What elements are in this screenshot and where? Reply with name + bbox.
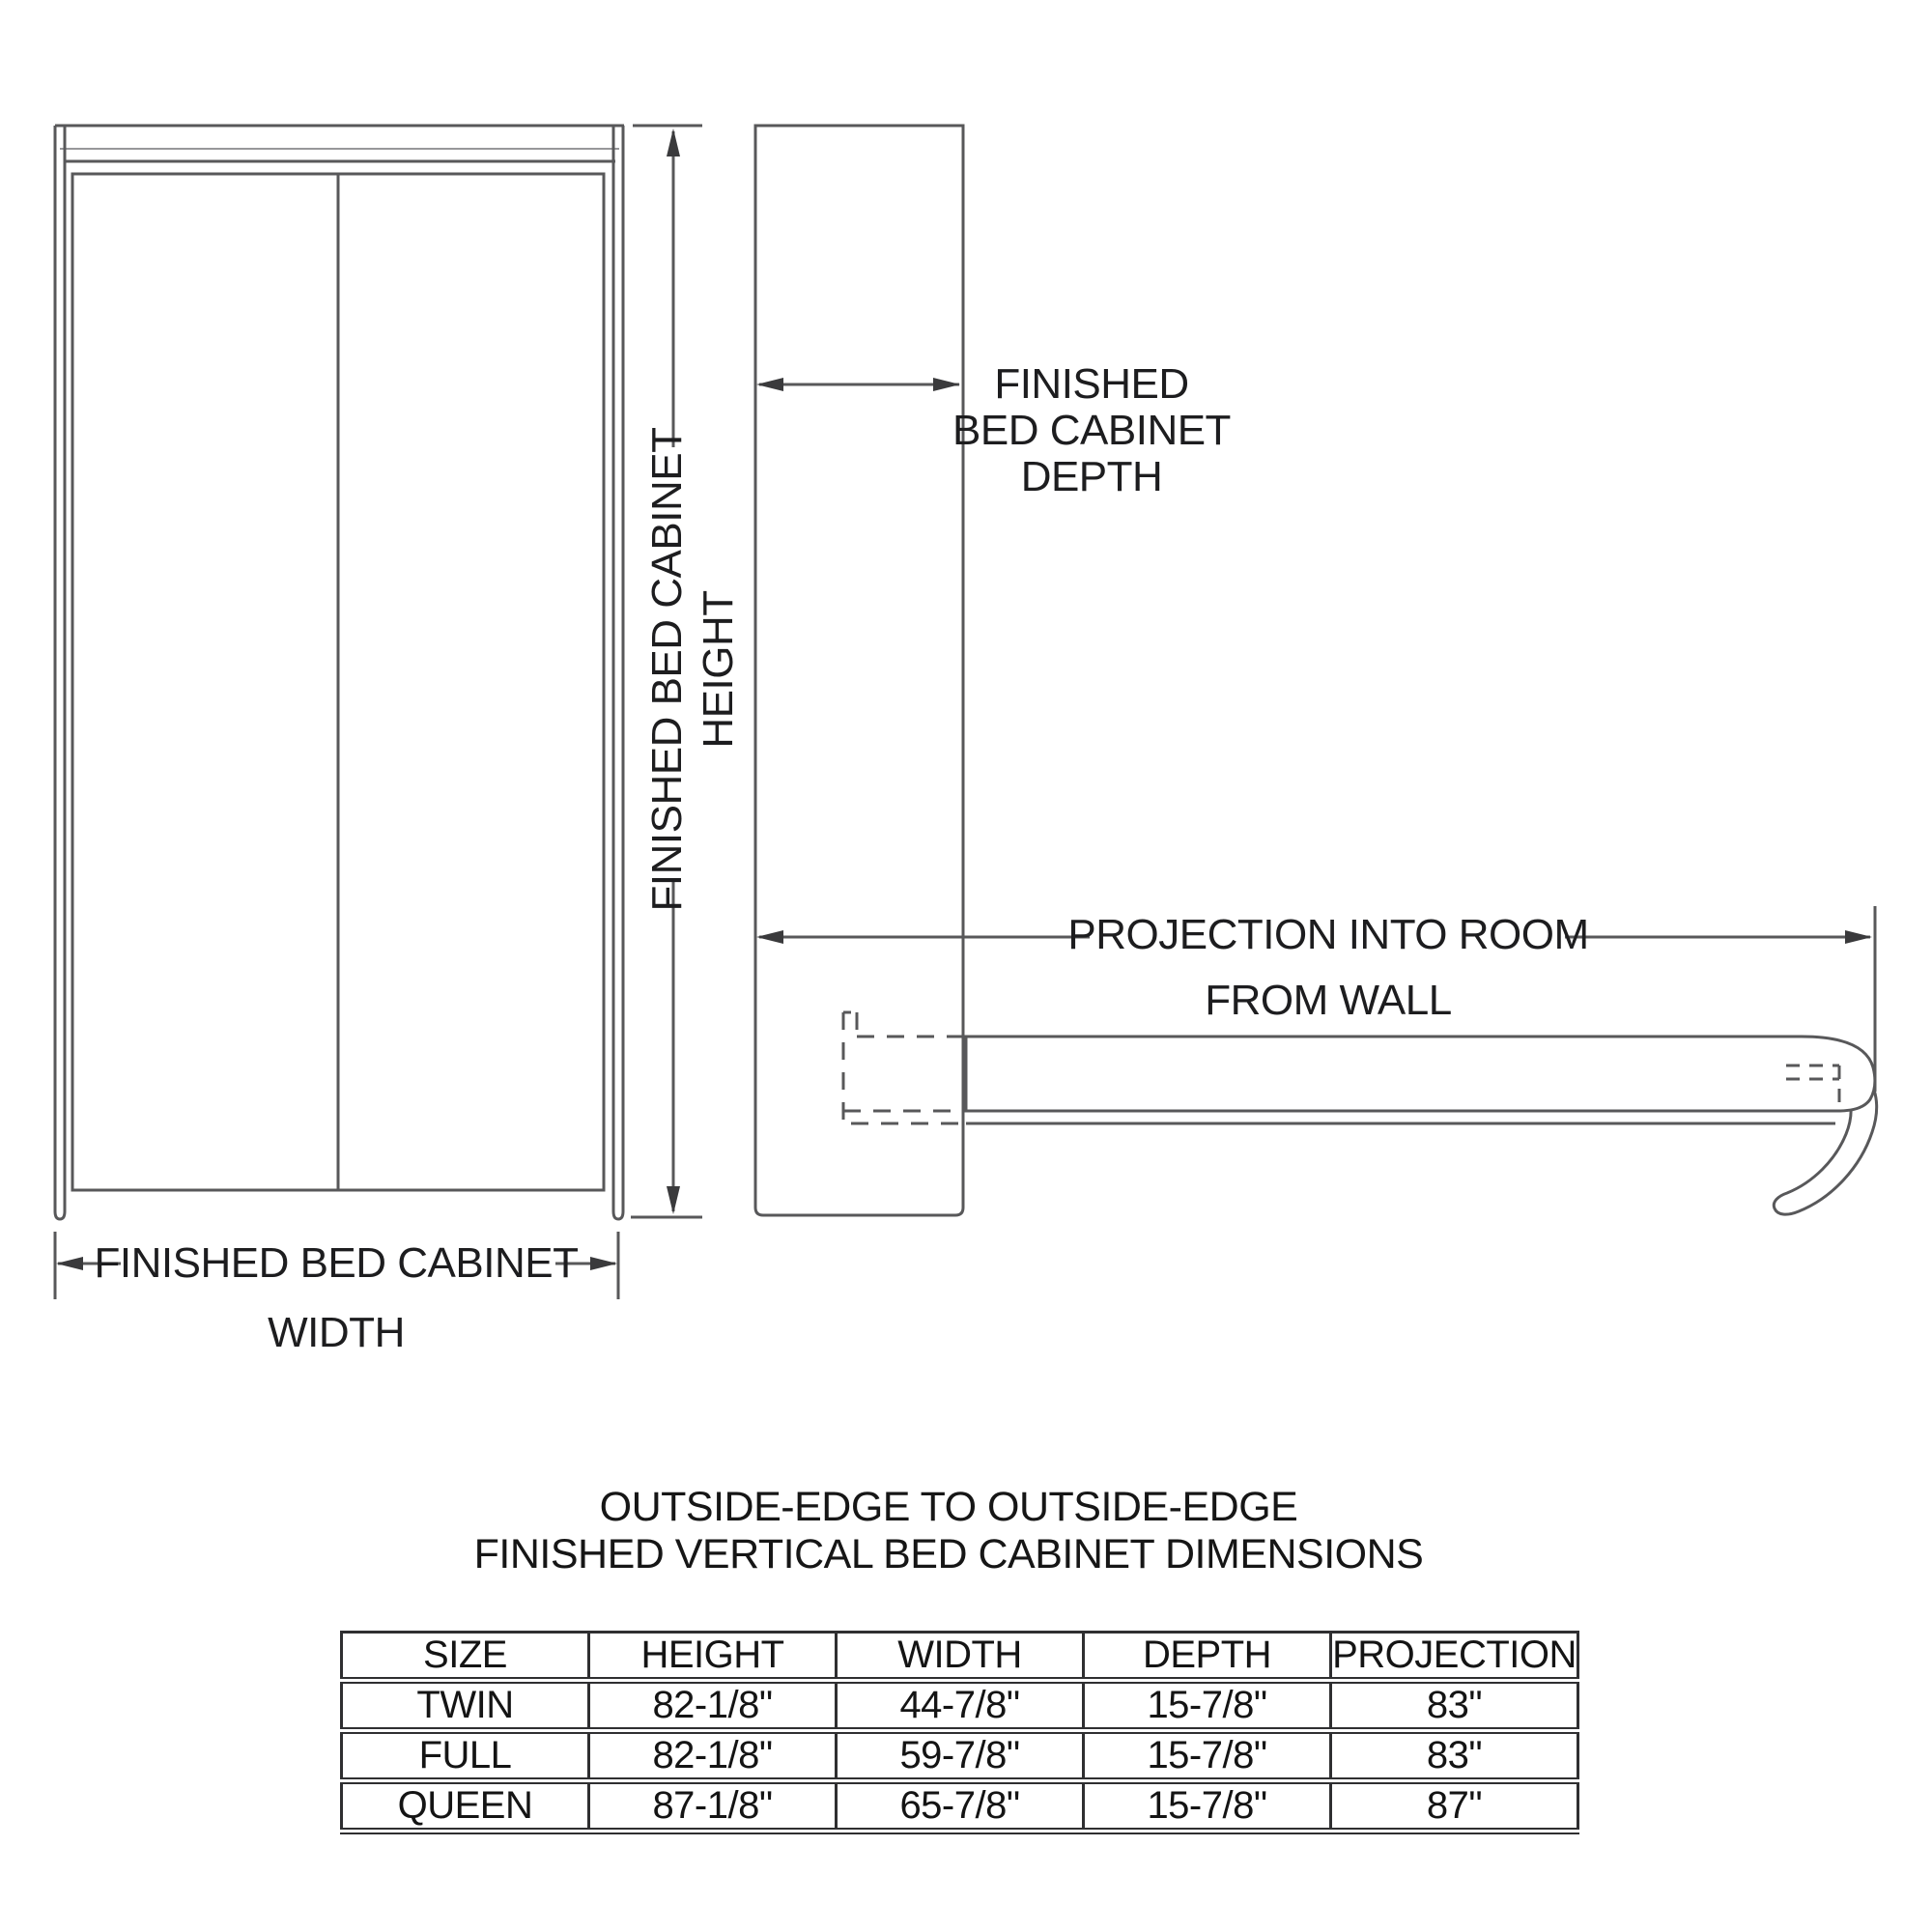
height-label: FINISHED BED CABINET HEIGHT: [641, 418, 744, 921]
cell-twin-width: 44-7/8": [837, 1681, 1084, 1731]
side-view-cabinet: [755, 126, 963, 1215]
col-header-width: WIDTH: [837, 1633, 1084, 1681]
cell-queen-height: 87-1/8": [589, 1781, 837, 1832]
projection-label-line1: PROJECTION INTO ROOM: [1038, 910, 1618, 960]
cell-queen-projection: 87": [1331, 1781, 1578, 1832]
cell-twin-depth: 15-7/8": [1084, 1681, 1331, 1731]
table-header-row: SIZE HEIGHT WIDTH DEPTH PROJECTION: [342, 1633, 1578, 1681]
width-label-line2: WIDTH: [46, 1308, 626, 1358]
col-header-size: SIZE: [342, 1633, 589, 1681]
height-label-line2: HEIGHT: [693, 418, 744, 921]
depth-label-line2: BED CABINET: [898, 408, 1285, 454]
front-view-cabinet: [55, 126, 624, 1219]
col-header-height: HEIGHT: [589, 1633, 837, 1681]
table-title: OUTSIDE-EDGE TO OUTSIDE-EDGE FINISHED VE…: [272, 1484, 1625, 1578]
murphy-bed-dimension-diagram: FINISHED BED CABINET WIDTH FINISHED BED …: [0, 0, 1932, 1932]
cell-queen-size: QUEEN: [342, 1781, 589, 1832]
bed-open-position: [966, 1037, 1875, 1123]
table-title-line1: OUTSIDE-EDGE TO OUTSIDE-EDGE: [272, 1484, 1625, 1531]
width-label-line1: FINISHED BED CABINET: [46, 1238, 626, 1289]
cell-full-height: 82-1/8": [589, 1731, 837, 1781]
cell-queen-width: 65-7/8": [837, 1781, 1084, 1832]
cell-full-size: FULL: [342, 1731, 589, 1781]
col-header-depth: DEPTH: [1084, 1633, 1331, 1681]
height-label-line1: FINISHED BED CABINET: [641, 418, 693, 921]
table-row-full: FULL 82-1/8" 59-7/8" 15-7/8" 83": [342, 1731, 1578, 1781]
depth-label-line1: FINISHED: [898, 361, 1285, 408]
col-header-projection: PROJECTION: [1331, 1633, 1578, 1681]
cell-full-projection: 83": [1331, 1731, 1578, 1781]
cell-full-depth: 15-7/8": [1084, 1731, 1331, 1781]
cell-twin-height: 82-1/8": [589, 1681, 837, 1731]
cell-twin-projection: 83": [1331, 1681, 1578, 1731]
table-row-twin: TWIN 82-1/8" 44-7/8" 15-7/8" 83": [342, 1681, 1578, 1731]
dimensions-table: SIZE HEIGHT WIDTH DEPTH PROJECTION TWIN …: [340, 1631, 1579, 1834]
depth-label-line3: DEPTH: [898, 454, 1285, 500]
projection-label-line2: FROM WALL: [1038, 976, 1618, 1026]
table-title-line2: FINISHED VERTICAL BED CABINET DIMENSIONS: [272, 1531, 1625, 1578]
cell-queen-depth: 15-7/8": [1084, 1781, 1331, 1832]
cell-twin-size: TWIN: [342, 1681, 589, 1731]
table-row-queen: QUEEN 87-1/8" 65-7/8" 15-7/8" 87": [342, 1781, 1578, 1832]
cell-full-width: 59-7/8": [837, 1731, 1084, 1781]
